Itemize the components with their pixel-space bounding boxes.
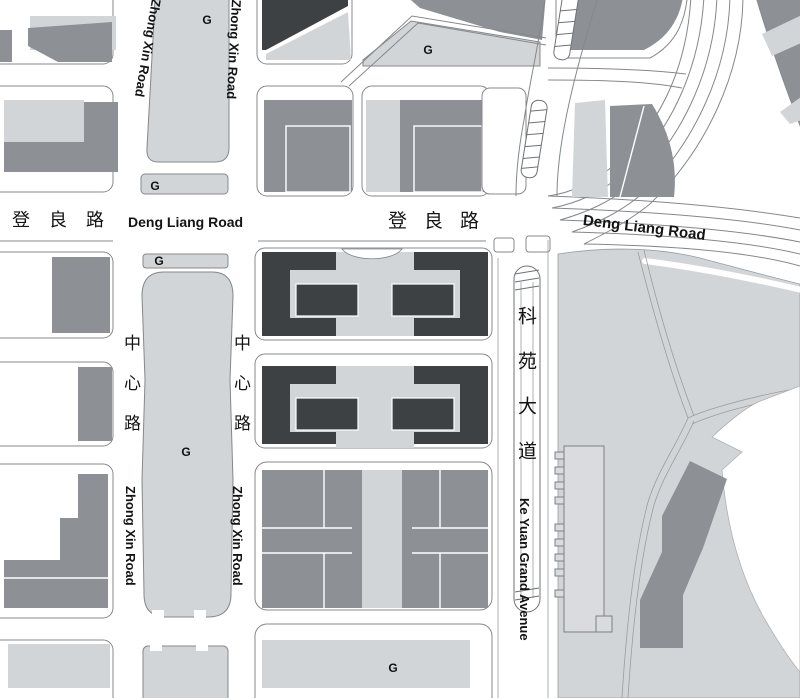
zhongxin-medians	[141, 0, 233, 698]
road-label-zhongxin-bottom-left: Zhong Xin Road	[124, 486, 137, 586]
road-label-zhongxin-bottom-right: Zhong Xin Road	[231, 486, 244, 586]
park-area	[555, 249, 800, 698]
h-pattern-block	[255, 462, 492, 610]
road-label-dengliang-cn-west: 登良路	[12, 212, 123, 230]
road-label-zhongxin-cn-left: 中心路	[121, 334, 138, 454]
road-label-dengliang-cn-center: 登良路	[388, 212, 496, 231]
greenspace-marker-1: G	[202, 13, 211, 27]
road-label-keyuan-en: Ke Yuan Grand Avenue	[518, 498, 531, 641]
comb-building	[555, 446, 612, 632]
map-root: Zhong Xin Road Zhong Xin Road 登良路 Deng L…	[0, 0, 800, 698]
road-label-dengliang-en-west: Deng Liang Road	[128, 215, 243, 229]
greenspace-marker-3: G	[423, 43, 432, 57]
road-label-keyuan-cn: 科苑大道	[516, 306, 535, 486]
greenspace-marker-5: G	[181, 445, 190, 459]
greenspace-marker-4: G	[154, 254, 163, 268]
greenspace-marker-2: G	[150, 179, 159, 193]
road-label-zhongxin-cn-right: 中心路	[231, 334, 248, 454]
greenspace-marker-6: G	[388, 661, 397, 675]
bottom-center-block	[255, 624, 492, 698]
